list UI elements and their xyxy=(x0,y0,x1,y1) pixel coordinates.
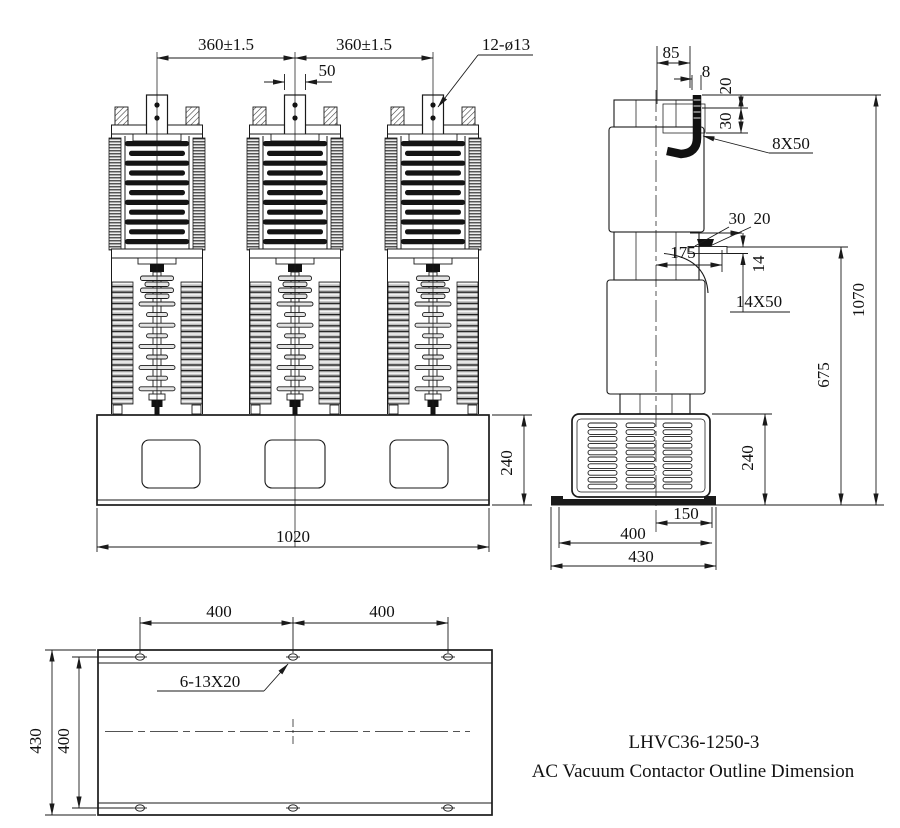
outline-drawing-svg: 360±1.5 360±1.5 50 12-ø13 240 1020 xyxy=(0,0,900,828)
dim-side-foot-width: 430 xyxy=(628,547,654,566)
front-base-cutout-3 xyxy=(390,440,448,488)
dim-plan-hole-callout: 6-13X20 xyxy=(180,672,240,691)
dim-side-pad-20: 20 xyxy=(754,209,771,228)
side-upper-insulator xyxy=(609,127,704,232)
dim-front-terminal-width: 50 xyxy=(319,61,336,80)
hook-note-leader xyxy=(703,136,769,153)
front-base-cutout-1 xyxy=(142,440,200,488)
dim-side-hook-depth: 30 xyxy=(716,113,735,130)
dim-side-box-height: 240 xyxy=(738,445,757,471)
drawing-caption: AC Vacuum Contactor Outline Dimension xyxy=(532,761,855,782)
plan-hole-leader xyxy=(264,664,288,691)
dim-side-hook-step: 20 xyxy=(716,78,735,95)
dim-plan-hole-rows: 400 xyxy=(54,728,73,754)
dim-front-hole-callout: 12-ø13 xyxy=(482,35,530,54)
side-bottom-cap xyxy=(620,394,690,414)
dim-side-pad-30: 30 xyxy=(729,209,746,228)
side-view: 85 8 20 30 8X50 30 20 175 14 14X50 xyxy=(551,43,884,570)
dim-side-busbar-note: 14X50 xyxy=(736,292,782,311)
front-view: 360±1.5 360±1.5 50 12-ø13 240 1020 xyxy=(97,35,533,552)
dim-front-base-height: 240 xyxy=(497,450,516,476)
dim-side-hook-note: 8X50 xyxy=(772,134,810,153)
dim-side-foot-center: 150 xyxy=(673,504,699,523)
dim-front-base-width: 1020 xyxy=(276,527,310,546)
dim-plan-span-right: 400 xyxy=(369,602,395,621)
dim-side-busbar-thickness: 14 xyxy=(749,255,768,273)
dim-side-foot-holes: 400 xyxy=(620,524,646,543)
dim-front-pole-spacing-left: 360±1.5 xyxy=(198,35,254,54)
model-number: LHVC36-1250-3 xyxy=(629,732,760,753)
front-hole-leader xyxy=(438,55,478,107)
dim-side-offset-85: 85 xyxy=(663,43,680,62)
title-block: LHVC36-1250-3 AC Vacuum Contactor Outlin… xyxy=(532,732,855,782)
plan-view: 400 400 6-13X20 430 400 xyxy=(26,602,492,815)
plan-base-plate xyxy=(98,650,492,815)
dim-front-pole-spacing-right: 360±1.5 xyxy=(336,35,392,54)
dim-side-hook-width: 8 xyxy=(702,62,711,81)
dim-side-height-675: 675 xyxy=(814,362,833,388)
drawing-sheet: 360±1.5 360±1.5 50 12-ø13 240 1020 xyxy=(0,0,900,828)
louver-grid xyxy=(588,423,692,489)
dim-plan-depth: 430 xyxy=(26,728,45,754)
front-base-box xyxy=(97,415,489,505)
dim-side-height-total: 1070 xyxy=(849,283,868,317)
dim-plan-span-left: 400 xyxy=(206,602,232,621)
dim-side-terminal-reach: 175 xyxy=(670,243,696,262)
